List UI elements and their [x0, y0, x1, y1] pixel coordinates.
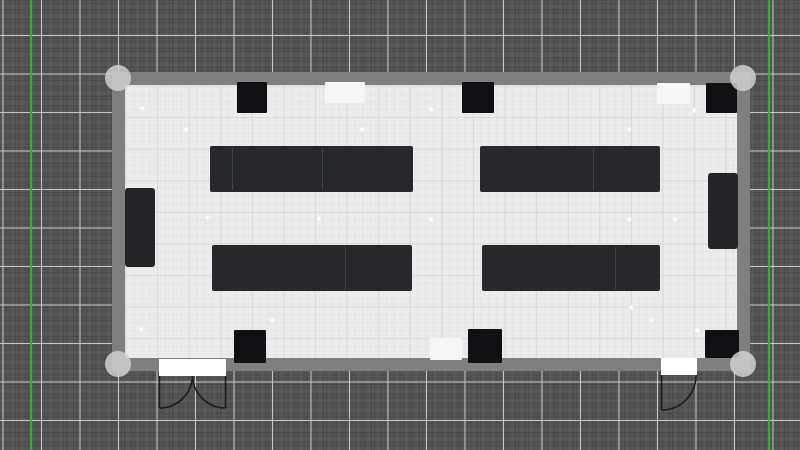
light-point-icon[interactable]: ✦	[625, 126, 633, 136]
single-door-leaf[interactable]	[661, 358, 697, 375]
light-point-icon[interactable]: ✦	[690, 107, 698, 117]
double-door-swing	[160, 376, 193, 408]
light-point-icon[interactable]: ✦	[315, 215, 323, 225]
light-point-icon[interactable]: ✦	[693, 327, 701, 337]
single-door[interactable]	[661, 358, 697, 410]
double-door[interactable]	[159, 359, 226, 408]
plan-canvas[interactable]: ✦✦✦✦✦✦✦✦✦✦✦✦✦✦✦✦	[0, 0, 800, 450]
single-door-swing	[662, 375, 697, 410]
light-point-icon[interactable]: ✦	[203, 214, 211, 224]
light-point-icon[interactable]: ✦	[647, 317, 655, 327]
double-door-leaf[interactable]	[159, 359, 226, 376]
light-point-icon[interactable]: ✦	[182, 126, 190, 136]
light-point-icon[interactable]: ✦	[427, 216, 435, 226]
light-point-icon[interactable]: ✦	[671, 216, 679, 226]
light-point-icon[interactable]: ✦	[625, 216, 633, 226]
light-point-icon[interactable]: ✦	[358, 126, 366, 136]
light-point-icon[interactable]: ✦	[268, 317, 276, 327]
door-layer	[0, 0, 800, 450]
light-point-icon[interactable]: ✦	[627, 304, 635, 314]
light-point-icon[interactable]: ✦	[138, 105, 146, 115]
light-point-icon[interactable]: ✦	[137, 326, 145, 336]
double-door-swing	[193, 376, 226, 408]
light-point-icon[interactable]: ✦	[427, 106, 435, 116]
